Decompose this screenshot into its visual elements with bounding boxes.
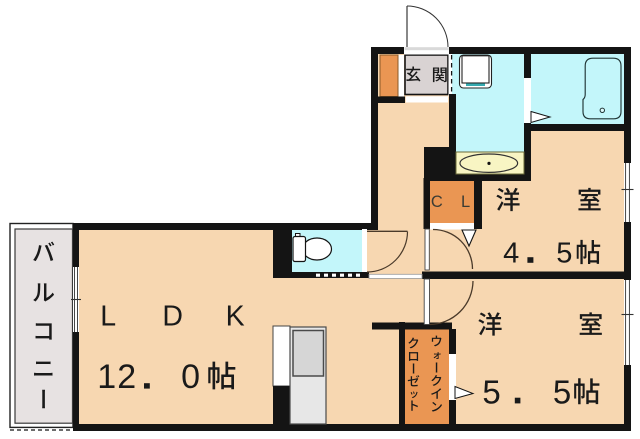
svg-text:D: D (162, 301, 183, 333)
svg-text:L: L (100, 301, 116, 333)
svg-text:5: 5 (482, 373, 500, 410)
svg-text:L: L (461, 193, 470, 211)
svg-text:K: K (226, 301, 245, 333)
svg-text:5: 5 (556, 238, 572, 270)
svg-text:1: 1 (97, 358, 116, 396)
svg-text:0: 0 (181, 358, 200, 396)
svg-text:4: 4 (503, 238, 519, 270)
svg-text:C: C (431, 193, 443, 211)
svg-text:5: 5 (553, 373, 571, 410)
svg-text:2: 2 (117, 358, 136, 396)
